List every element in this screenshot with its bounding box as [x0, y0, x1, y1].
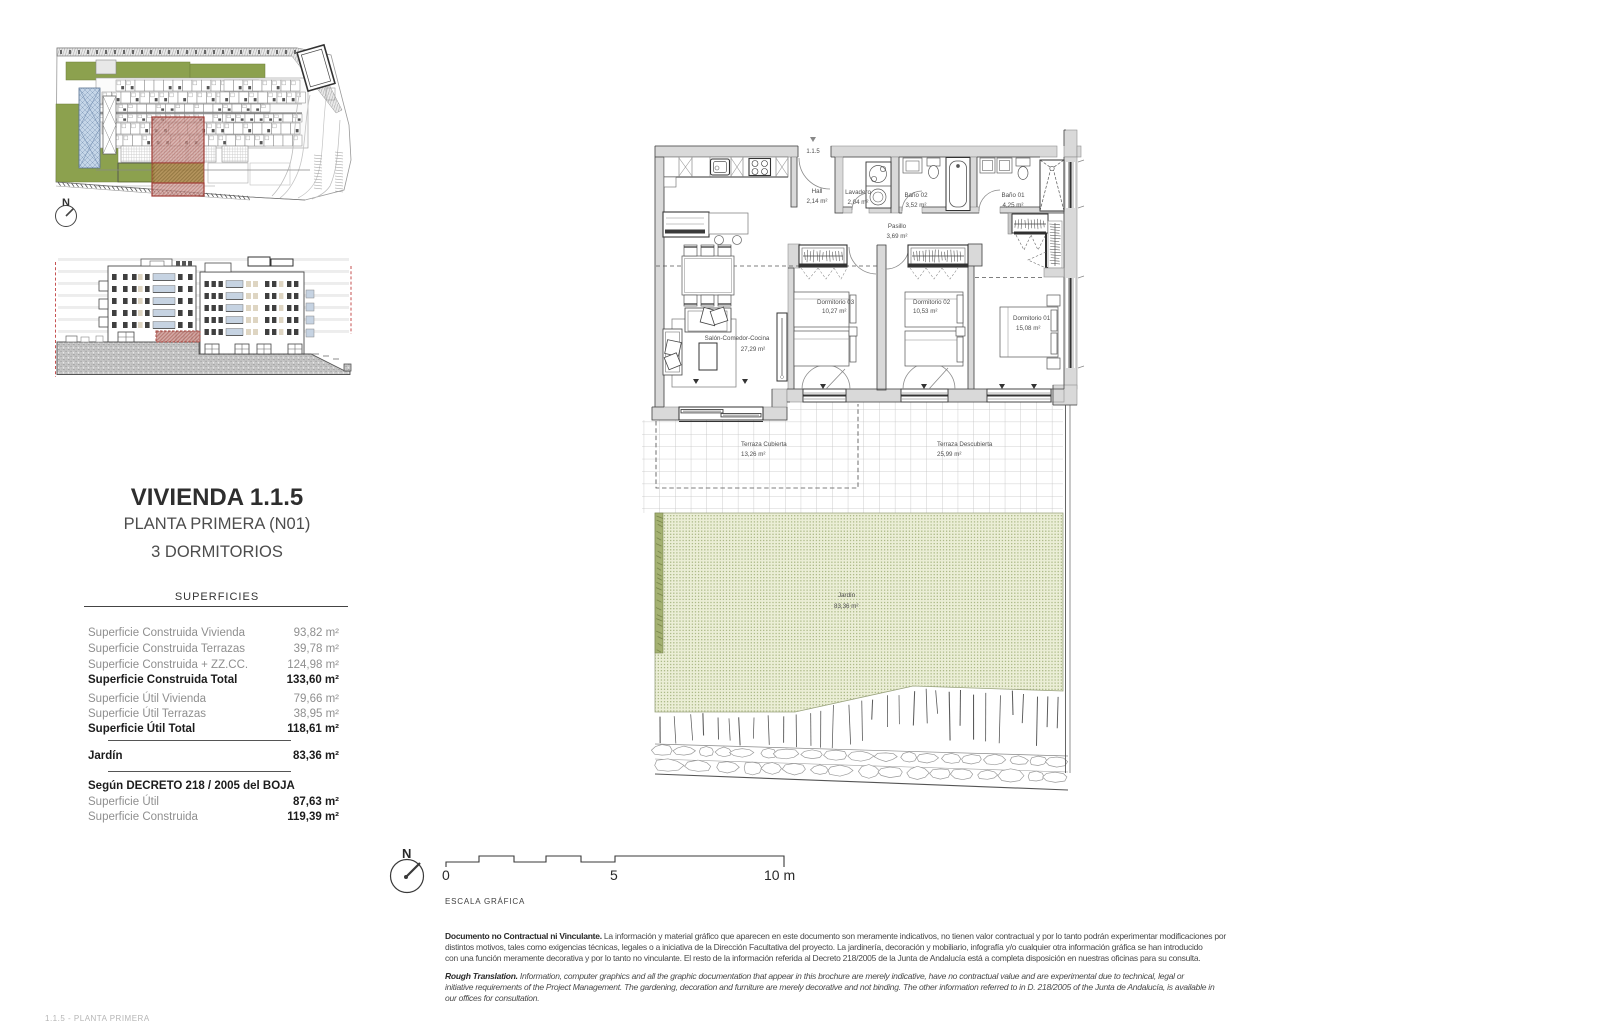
svg-text:10,27 m²: 10,27 m² — [822, 308, 846, 315]
svg-text:Dormitorio 02: Dormitorio 02 — [913, 299, 951, 306]
svg-text:Jardín: Jardín — [838, 592, 856, 599]
svg-text:83,36 m²: 83,36 m² — [834, 603, 858, 610]
svg-text:2,04 m²: 2,04 m² — [848, 199, 869, 206]
svg-text:0: 0 — [442, 867, 450, 883]
svg-text:Hall: Hall — [812, 188, 823, 195]
svg-text:10 m: 10 m — [764, 867, 795, 883]
svg-text:2,14 m²: 2,14 m² — [807, 198, 828, 205]
svg-text:Baño 02: Baño 02 — [904, 192, 928, 199]
svg-text:10,53 m²: 10,53 m² — [913, 308, 937, 315]
svg-text:1.1.5: 1.1.5 — [806, 149, 820, 155]
svg-text:4,25 m²: 4,25 m² — [1003, 202, 1024, 209]
svg-text:Terraza Cubierta: Terraza Cubierta — [741, 441, 787, 448]
svg-text:N: N — [62, 197, 70, 209]
svg-text:5: 5 — [610, 867, 618, 883]
svg-text:Pasillo: Pasillo — [888, 223, 907, 230]
svg-text:Lavadero: Lavadero — [845, 189, 871, 196]
svg-text:Dormitorio 03: Dormitorio 03 — [817, 299, 855, 306]
svg-text:3,69 m²: 3,69 m² — [887, 233, 908, 240]
svg-text:Baño 01: Baño 01 — [1001, 192, 1025, 199]
svg-text:3,52 m²: 3,52 m² — [906, 202, 927, 209]
svg-text:Terraza Descubierta: Terraza Descubierta — [937, 441, 993, 448]
svg-text:25,99 m²: 25,99 m² — [937, 451, 961, 458]
svg-text:13,26 m²: 13,26 m² — [741, 451, 765, 458]
svg-text:Salón-Comedor-Cocina: Salón-Comedor-Cocina — [705, 335, 770, 342]
svg-text:15,08 m²: 15,08 m² — [1016, 325, 1040, 332]
svg-text:N: N — [402, 846, 411, 861]
svg-text:Dormitorio 01: Dormitorio 01 — [1013, 315, 1051, 322]
svg-text:27,29 m²: 27,29 m² — [741, 346, 765, 353]
